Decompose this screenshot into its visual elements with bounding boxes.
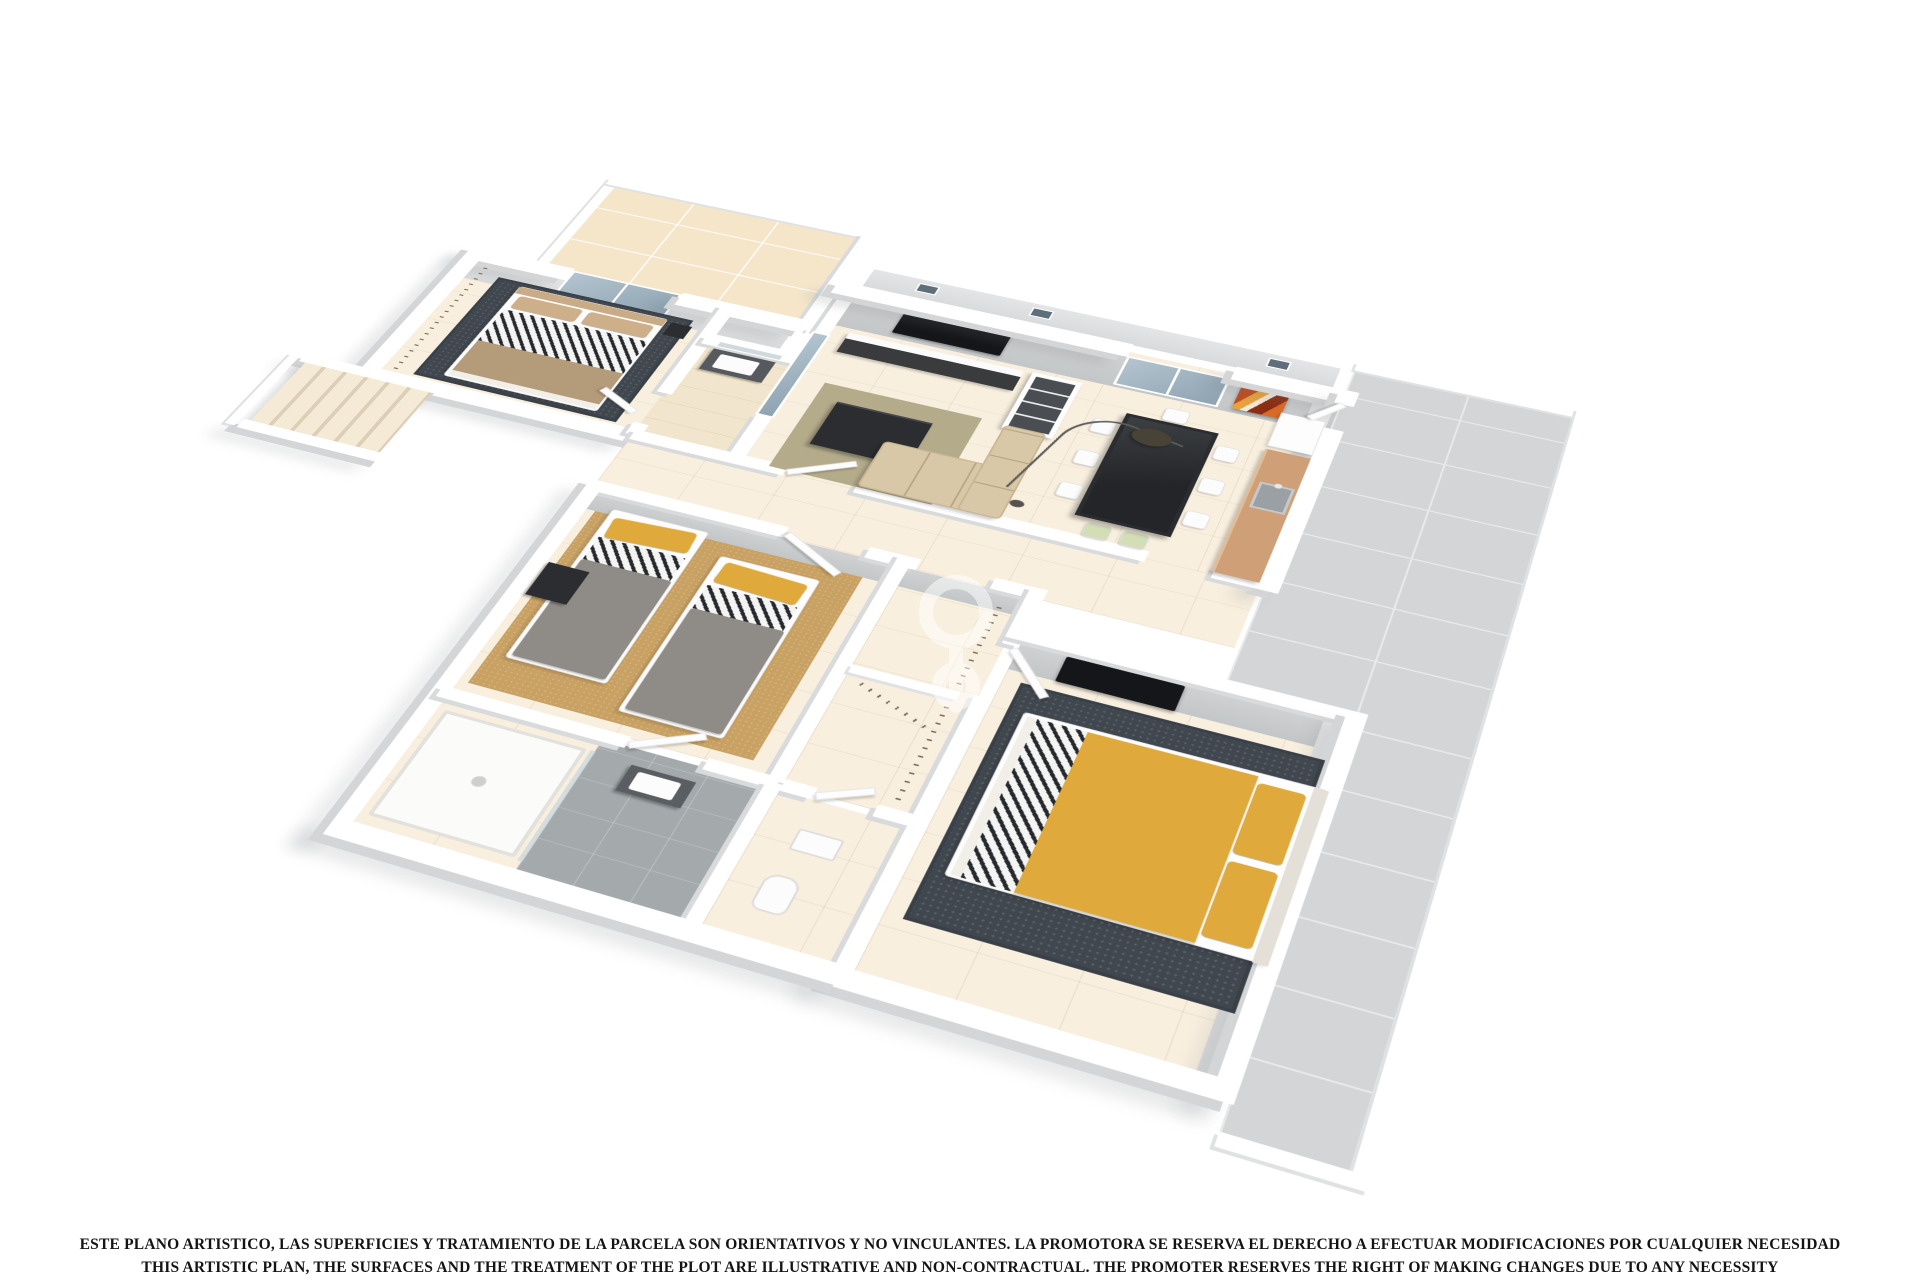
window-mullion	[1166, 368, 1181, 394]
disclaimer: ESTE PLANO ARTISTICO, LAS SUPERFICIES Y …	[0, 1233, 1920, 1279]
faucet-icon	[1274, 483, 1283, 489]
shower-drain-icon	[469, 775, 489, 789]
disclaimer-line-en: THIS ARTISTIC PLAN, THE SURFACES AND THE…	[0, 1256, 1920, 1279]
floorplan-canvas: ESTE PLANO ARTISTICO, LAS SUPERFICIES Y …	[0, 0, 1920, 1280]
apartment-plan	[0, 161, 1648, 1207]
watermark-logo	[908, 568, 1004, 718]
kitchen-sink	[1249, 481, 1295, 514]
clerestory-window-icon	[1265, 358, 1292, 372]
clerestory-window-icon	[914, 283, 940, 296]
clerestory-window-icon	[1028, 307, 1054, 320]
bathroom1-sink	[711, 354, 760, 376]
disclaimer-line-es: ESTE PLANO ARTISTICO, LAS SUPERFICIES Y …	[0, 1233, 1920, 1256]
